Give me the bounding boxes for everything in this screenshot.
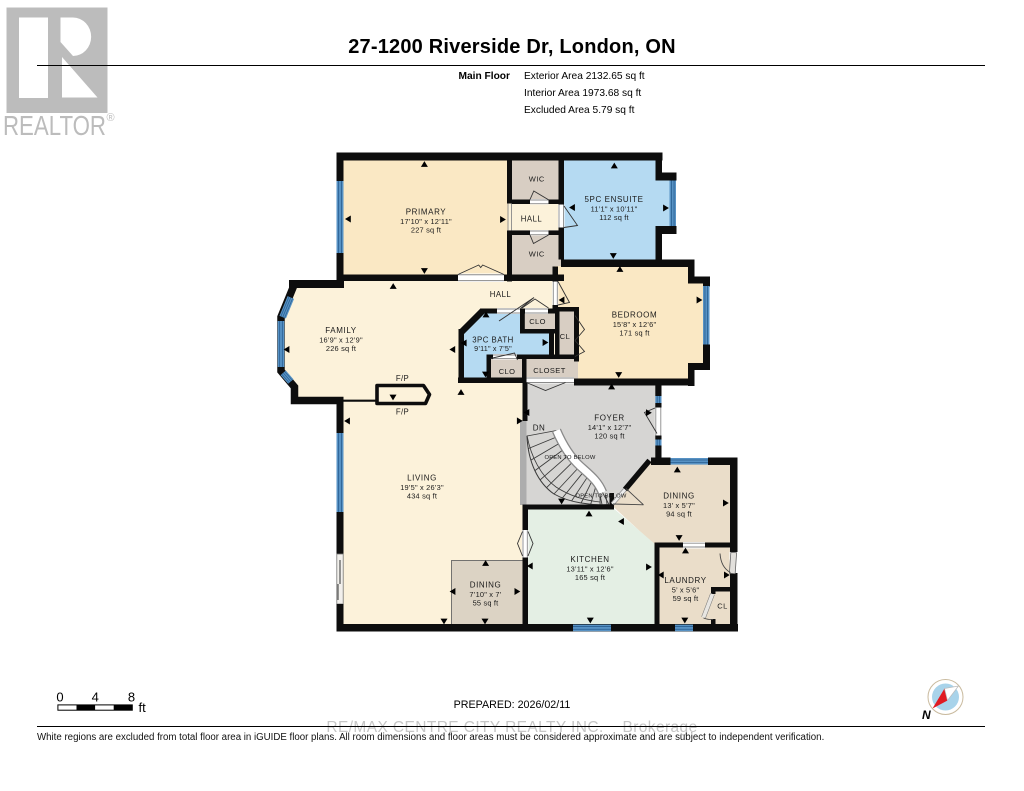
svg-text:OPEN TO BELOW: OPEN TO BELOW (544, 455, 595, 461)
svg-text:434 sq ft: 434 sq ft (407, 491, 437, 500)
svg-text:PRIMARY: PRIMARY (406, 208, 447, 217)
svg-text:5PC ENSUITE: 5PC ENSUITE (584, 195, 643, 204)
svg-text:94 sq ft: 94 sq ft (666, 509, 692, 518)
svg-text:HALL: HALL (490, 290, 512, 299)
svg-text:165 sq ft: 165 sq ft (575, 573, 605, 582)
svg-text:LAUNDRY: LAUNDRY (664, 576, 706, 585)
svg-text:120 sq ft: 120 sq ft (594, 431, 624, 440)
svg-text:N: N (922, 708, 931, 722)
svg-text:OPEN TO BELOW: OPEN TO BELOW (575, 493, 626, 499)
svg-text:112 sq ft: 112 sq ft (599, 213, 629, 222)
svg-text:DN: DN (533, 424, 546, 433)
svg-text:226 sq ft: 226 sq ft (326, 344, 356, 353)
svg-text:DINING: DINING (470, 581, 502, 590)
svg-text:CLO: CLO (499, 367, 516, 376)
svg-text:FAMILY: FAMILY (325, 326, 357, 335)
svg-text:DINING: DINING (663, 492, 695, 501)
svg-text:F/P: F/P (396, 374, 409, 383)
svg-text:WIC: WIC (529, 175, 545, 184)
svg-text:59 sq ft: 59 sq ft (673, 594, 699, 603)
svg-text:CLOSET: CLOSET (533, 366, 565, 375)
svg-text:CL: CL (560, 332, 570, 341)
svg-text:HALL: HALL (521, 215, 543, 224)
svg-text:9’11" x 7’5": 9’11" x 7’5" (474, 344, 512, 353)
svg-text:F/P: F/P (396, 408, 409, 417)
svg-text:55 sq ft: 55 sq ft (473, 598, 499, 607)
svg-text:KITCHEN: KITCHEN (570, 555, 609, 564)
svg-text:227 sq ft: 227 sq ft (411, 225, 441, 234)
svg-text:LIVING: LIVING (407, 474, 437, 483)
svg-text:CLO: CLO (529, 317, 546, 326)
svg-text:171 sq ft: 171 sq ft (619, 328, 649, 337)
svg-text:FOYER: FOYER (594, 414, 625, 423)
svg-text:WIC: WIC (529, 250, 545, 259)
svg-text:BEDROOM: BEDROOM (612, 311, 658, 320)
svg-text:CL: CL (717, 602, 727, 611)
